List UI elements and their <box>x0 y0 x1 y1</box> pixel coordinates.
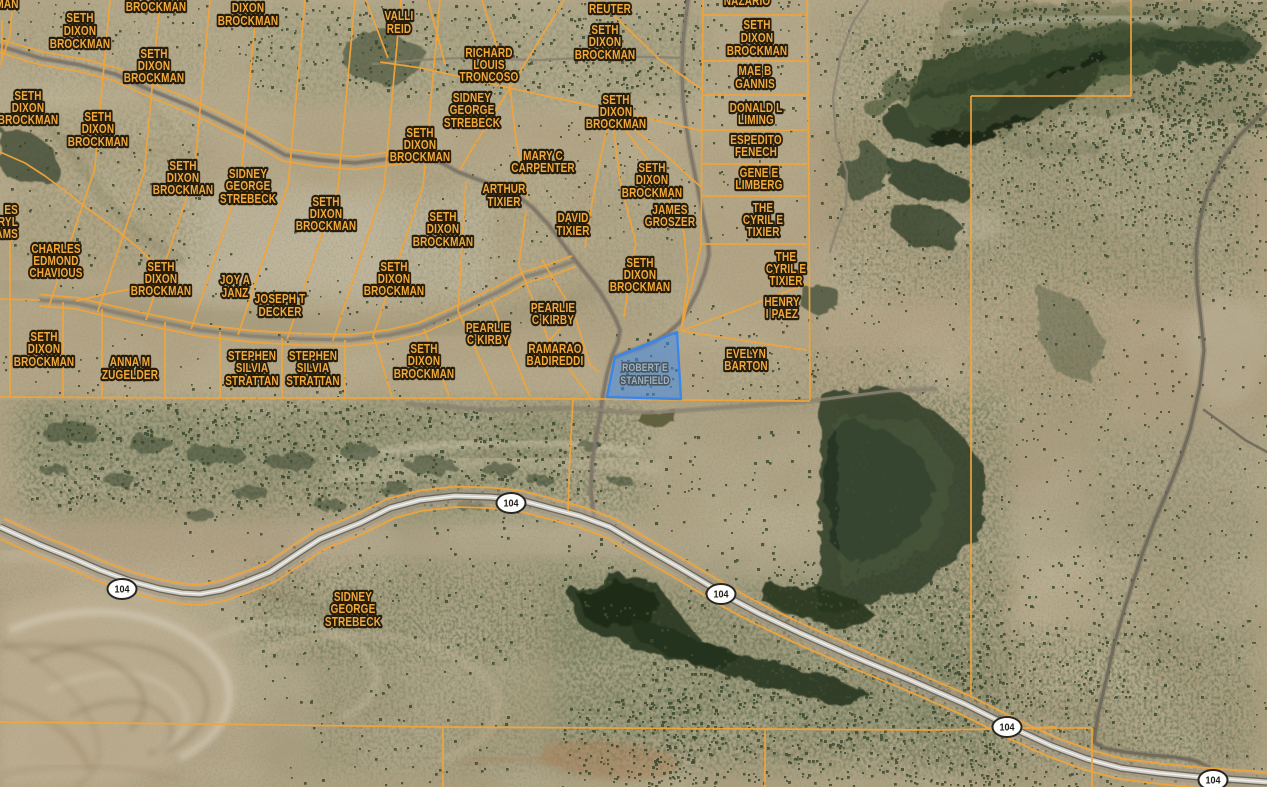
svg-text:VALLIREID: VALLIREID <box>385 10 414 36</box>
svg-text:MAN: MAN <box>0 0 19 11</box>
svg-text:NAZARIO: NAZARIO <box>724 0 771 8</box>
svg-text:EVELYNBARTON: EVELYNBARTON <box>724 348 767 373</box>
svg-text:GENE ELIMBERG: GENE ELIMBERG <box>735 167 782 192</box>
svg-text:PEARLIEC KIRBY: PEARLIEC KIRBY <box>531 302 576 327</box>
svg-text:PEARLIEC KIRBY: PEARLIEC KIRBY <box>466 322 511 347</box>
svg-text:HENRYI PAEZ: HENRYI PAEZ <box>764 296 800 321</box>
svg-text:REUTER: REUTER <box>589 3 631 16</box>
svg-text:ANNA MZUGELDER: ANNA MZUGELDER <box>102 356 158 382</box>
svg-text:JOSEPH TDECKER: JOSEPH TDECKER <box>255 293 306 319</box>
svg-text:104: 104 <box>999 721 1015 732</box>
svg-text:MAE BGANNIS: MAE BGANNIS <box>735 65 775 91</box>
svg-text:BROCKMAN: BROCKMAN <box>126 1 187 14</box>
svg-text:CHARLESEDMONDCHAVIOUS: CHARLESEDMONDCHAVIOUS <box>29 243 82 280</box>
svg-text:RAMARAOBADIREDDI: RAMARAOBADIREDDI <box>527 343 584 368</box>
svg-text:DAVIDTIXIER: DAVIDTIXIER <box>556 212 589 238</box>
svg-text:104: 104 <box>114 583 130 594</box>
svg-text:104: 104 <box>503 497 519 508</box>
svg-text:JOY AJANZ: JOY AJANZ <box>220 274 250 300</box>
svg-text:ROBERT ESTANFIELD: ROBERT ESTANFIELD <box>620 362 669 387</box>
svg-text:ARTHURTIXIER: ARTHURTIXIER <box>482 183 525 209</box>
svg-text:ESPEDITOFENECH: ESPEDITOFENECH <box>730 134 782 159</box>
svg-text:104: 104 <box>713 588 729 599</box>
svg-text:104: 104 <box>1205 774 1221 785</box>
